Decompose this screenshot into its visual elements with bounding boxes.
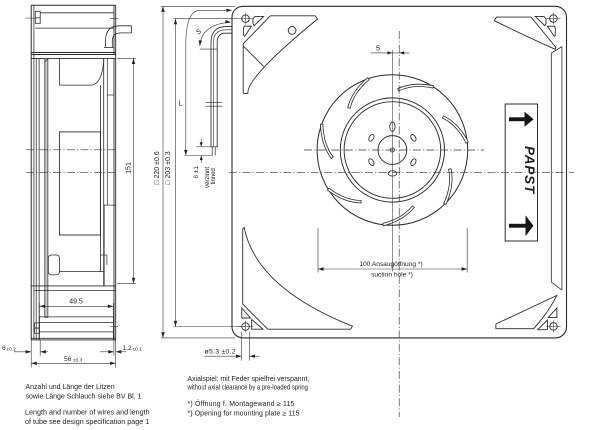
svg-text:100 Ansaugöffnung *): 100 Ansaugöffnung *) xyxy=(359,261,422,268)
svg-text:ø5.3 ±0.2: ø5.3 ±0.2 xyxy=(205,349,236,356)
svg-text:56: 56 xyxy=(64,356,72,363)
svg-text:sowie Länge Schlauch siehe BV: sowie Länge Schlauch siehe BV Bl. 1 xyxy=(26,394,142,401)
svg-text:5: 5 xyxy=(376,45,380,52)
svg-text:6 ±1: 6 ±1 xyxy=(193,166,200,179)
svg-text:±0.2: ±0.2 xyxy=(7,346,17,352)
svg-text:1.2: 1.2 xyxy=(123,345,132,352)
svg-text:*) Opening for mounting plate: *) Opening for mounting plate ≥ 115 xyxy=(188,411,300,418)
svg-text:L: L xyxy=(179,99,183,108)
svg-text:of tube see design specificati: of tube see design specification page 1 xyxy=(25,417,149,426)
svg-text:□ 220 ±0.6: □ 220 ±0.6 xyxy=(154,151,161,184)
svg-text:6: 6 xyxy=(2,345,6,352)
svg-text:*) Öffnung f. Montagewand ≥ 11: *) Öffnung f. Montagewand ≥ 115 xyxy=(188,400,295,408)
svg-text:151: 151 xyxy=(126,162,133,174)
svg-text:tinned: tinned xyxy=(211,168,217,184)
svg-text:verzinnt: verzinnt xyxy=(205,167,211,188)
svg-text:Length and number of wires and: Length and number of wires and length xyxy=(25,408,150,417)
svg-text:±0.3: ±0.3 xyxy=(73,358,83,364)
svg-text:□ 203 ±0.3: □ 203 ±0.3 xyxy=(165,151,172,184)
svg-text:Axialspiel: mit Feder spielfre: Axialspiel: mit Feder spielfrei verspann… xyxy=(188,376,310,383)
svg-text:±0.1: ±0.1 xyxy=(133,346,143,352)
svg-text:without axial clearance by a p: without axial clearance by a pre-loaded … xyxy=(187,384,309,392)
svg-text:49.5: 49.5 xyxy=(69,299,83,306)
svg-text:suction hole *): suction hole *) xyxy=(371,272,413,279)
svg-text:Anzahl und Länge der Litzen: Anzahl und Länge der Litzen xyxy=(26,384,115,391)
svg-text:PAPST: PAPST xyxy=(522,146,537,195)
